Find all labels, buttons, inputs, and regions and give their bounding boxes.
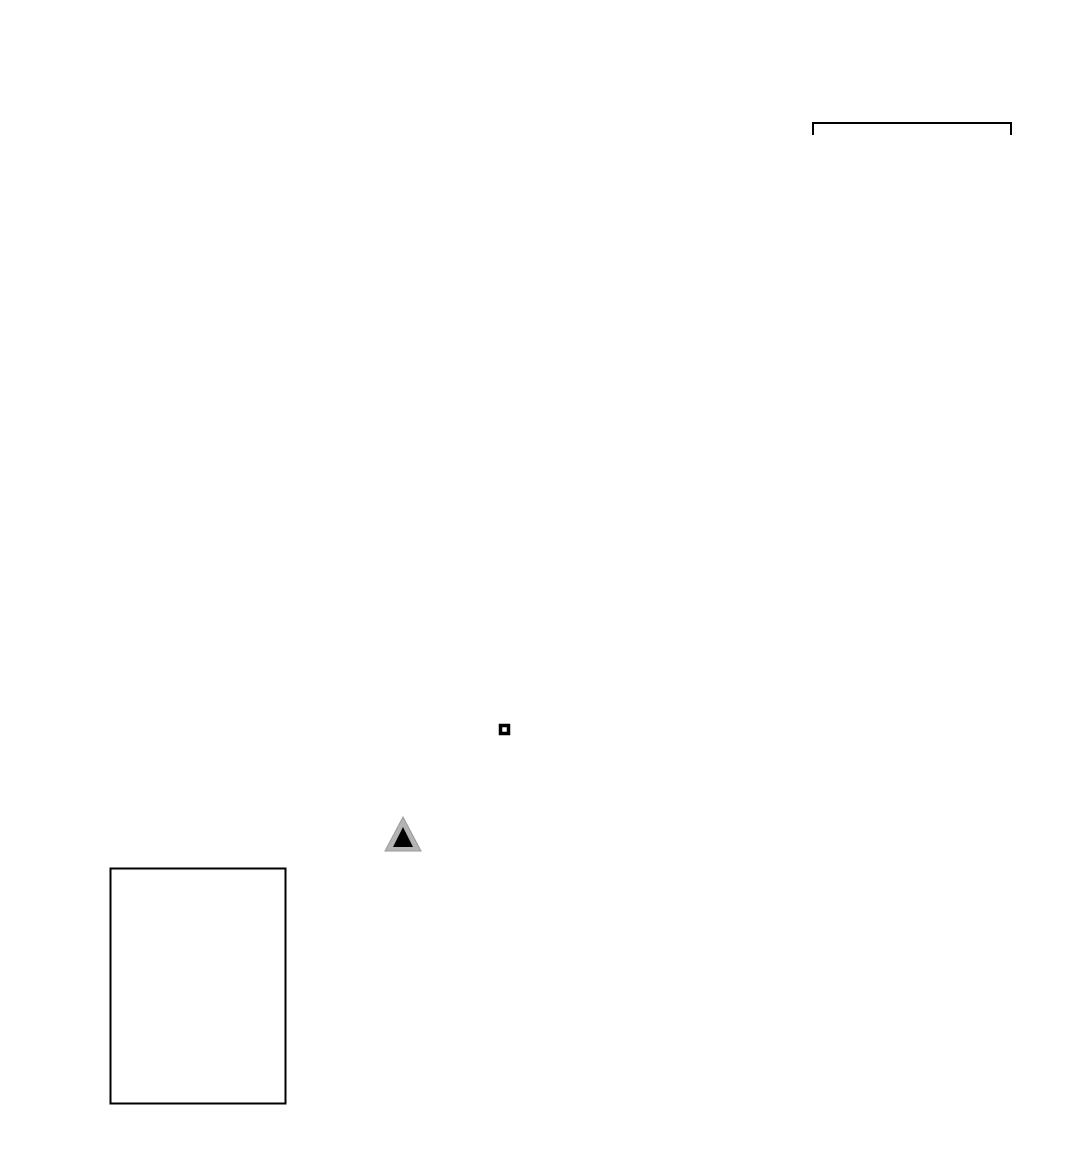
legend-box xyxy=(111,869,286,1104)
scale-bar xyxy=(813,123,1011,135)
scale-bar-bracket xyxy=(813,123,1011,135)
station-triangle-marker xyxy=(385,817,421,851)
city-marker-kerman xyxy=(501,726,509,734)
city-square-icon xyxy=(501,726,509,734)
map-canvas xyxy=(0,0,1066,1154)
magnitude-legend xyxy=(111,869,286,1104)
seismicity-map-figure xyxy=(0,0,1066,1154)
